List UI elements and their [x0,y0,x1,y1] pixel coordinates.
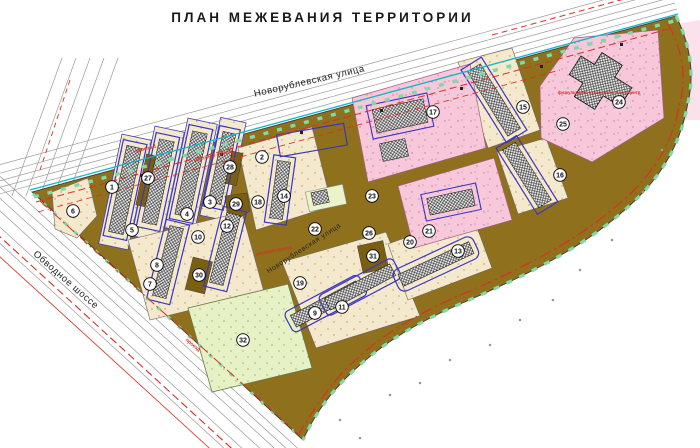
street-label-novorublevskaya: Новорублевская улица [253,63,366,99]
parcel-number: 9 [313,311,317,318]
parcel-number: 3 [208,200,212,207]
parcel-label-13: 13 [452,245,465,258]
parcel-label-29: 29 [230,198,243,211]
parcel-label-17: 17 [427,106,440,119]
parcel-number: 20 [406,240,414,247]
parcel-number: 7 [148,282,152,289]
parcel-label-24: 24 [613,96,626,109]
parcel-number: 22 [311,227,319,234]
parcel-number: 12 [223,224,231,231]
parcel-number: 18 [254,200,262,207]
parcel-label-3: 3 [204,196,217,209]
parcel-number: 13 [454,249,462,256]
parcel-number: 25 [559,122,567,129]
parcel-label-31: 31 [367,250,380,263]
parcel-number: 1 [110,185,114,192]
parcel-number: 5 [130,228,134,235]
parcel-number: 10 [194,235,202,242]
parcel-label-23: 23 [366,190,379,203]
parcel-label-19: 19 [294,277,307,290]
parcel-label-8: 8 [151,259,164,272]
parcel-number: 31 [369,254,377,261]
parcel-label-1: 1 [106,181,119,194]
parcel-number: 11 [338,305,346,312]
parcel-number: 26 [365,231,373,238]
parcel-number: 17 [429,110,437,117]
parcel-number: 16 [556,173,564,180]
parcel-label-14: 14 [278,190,291,203]
parcel-label-18: 18 [252,196,265,209]
parcel-number: 30 [195,273,203,280]
parcel-number: 14 [280,194,288,201]
parcel-label-25: 25 [557,118,570,131]
parcel-number: 2 [260,155,264,162]
parcel-label-32: 32 [237,334,250,347]
parcel-number: 32 [239,338,247,345]
parcel-label-15: 15 [517,101,530,114]
parcel-number: 21 [425,229,433,236]
parcel-number: 23 [368,194,376,201]
parcel-number: 4 [185,212,189,219]
plan-page: ПЛАН МЕЖЕВАНИЯ ТЕРРИТОРИИ [0,0,700,448]
annotation-fitness-center: физкультурно-оздоровительный центр [558,90,641,95]
parcel-label-4: 4 [181,208,194,221]
parcel-label-21: 21 [423,225,436,238]
parcel-label-11: 11 [336,301,349,314]
parcel-number: 8 [155,263,159,270]
parcel-label-5: 5 [126,224,139,237]
parcel-label-9: 9 [309,307,322,320]
parcel-label-22: 22 [309,223,322,236]
parcel-number: 24 [615,100,623,107]
plan-map: Новорублевская улицаОбводное шоссеНовору… [0,0,700,448]
parcel-number: 27 [144,176,152,183]
parcel-label-26: 26 [363,227,376,240]
parcel-label-12: 12 [221,220,234,233]
parcel-number: 19 [296,281,304,288]
parcel-label-7: 7 [144,278,157,291]
parcel-label-20: 20 [404,236,417,249]
parcel-number: 15 [519,105,527,112]
parcel-label-2: 2 [256,151,269,164]
parcel-label-6: 6 [67,205,80,218]
parcel-number: 6 [71,209,75,216]
parcel-label-28: 28 [224,161,237,174]
parcel-label-30: 30 [193,269,206,282]
parcel-label-10: 10 [192,231,205,244]
parcel-number: 29 [232,202,240,209]
parcel-label-16: 16 [554,169,567,182]
parcel-number: 28 [226,165,234,172]
parcel-label-27: 27 [142,172,155,185]
